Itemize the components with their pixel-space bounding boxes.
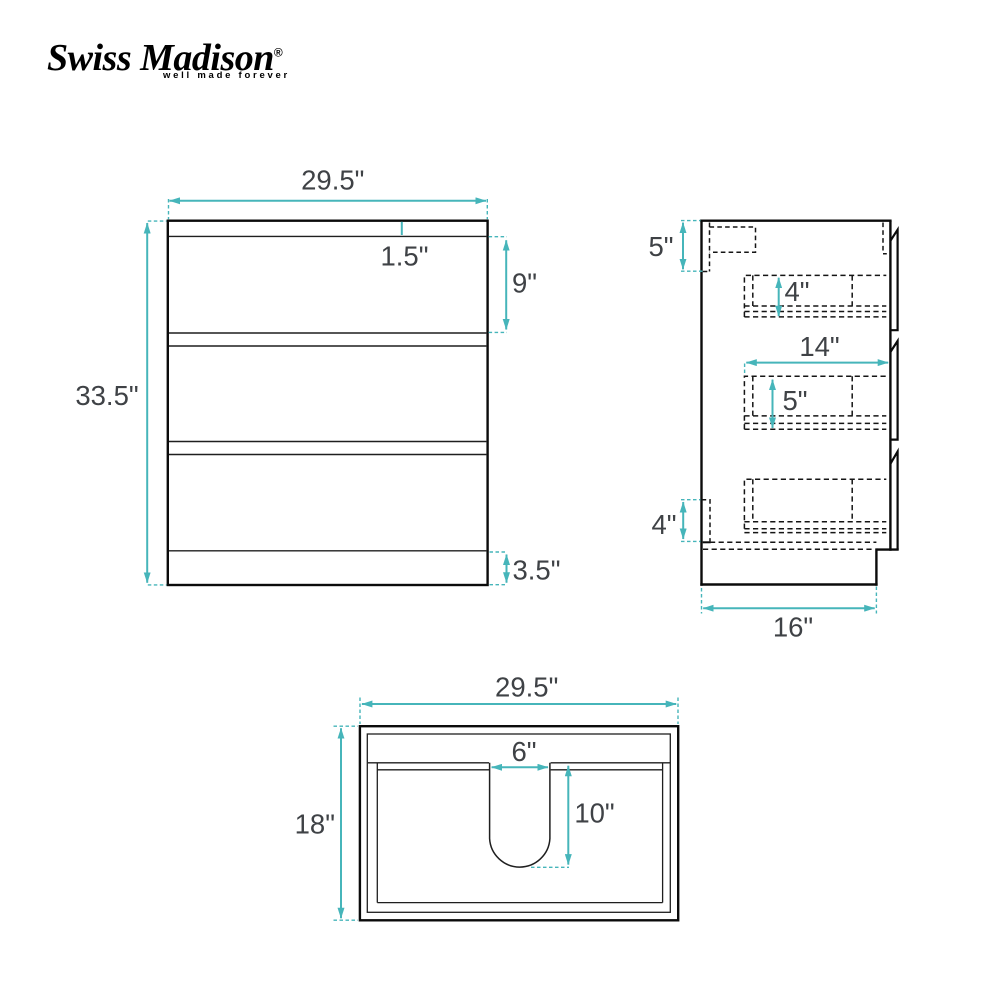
svg-text:14": 14" <box>799 331 839 362</box>
svg-text:4": 4" <box>784 276 809 307</box>
svg-text:6": 6" <box>511 736 536 767</box>
svg-text:4": 4" <box>651 509 676 540</box>
svg-text:5": 5" <box>648 231 673 262</box>
svg-text:1.5": 1.5" <box>381 241 429 272</box>
svg-text:29.5": 29.5" <box>495 672 558 703</box>
svg-text:18": 18" <box>295 808 335 839</box>
svg-text:16": 16" <box>773 612 813 643</box>
svg-text:5": 5" <box>782 385 807 416</box>
svg-text:9": 9" <box>512 268 537 299</box>
svg-text:29.5": 29.5" <box>301 165 364 196</box>
svg-text:10": 10" <box>574 798 614 829</box>
svg-text:33.5": 33.5" <box>75 380 138 411</box>
svg-text:3.5": 3.5" <box>513 554 561 585</box>
